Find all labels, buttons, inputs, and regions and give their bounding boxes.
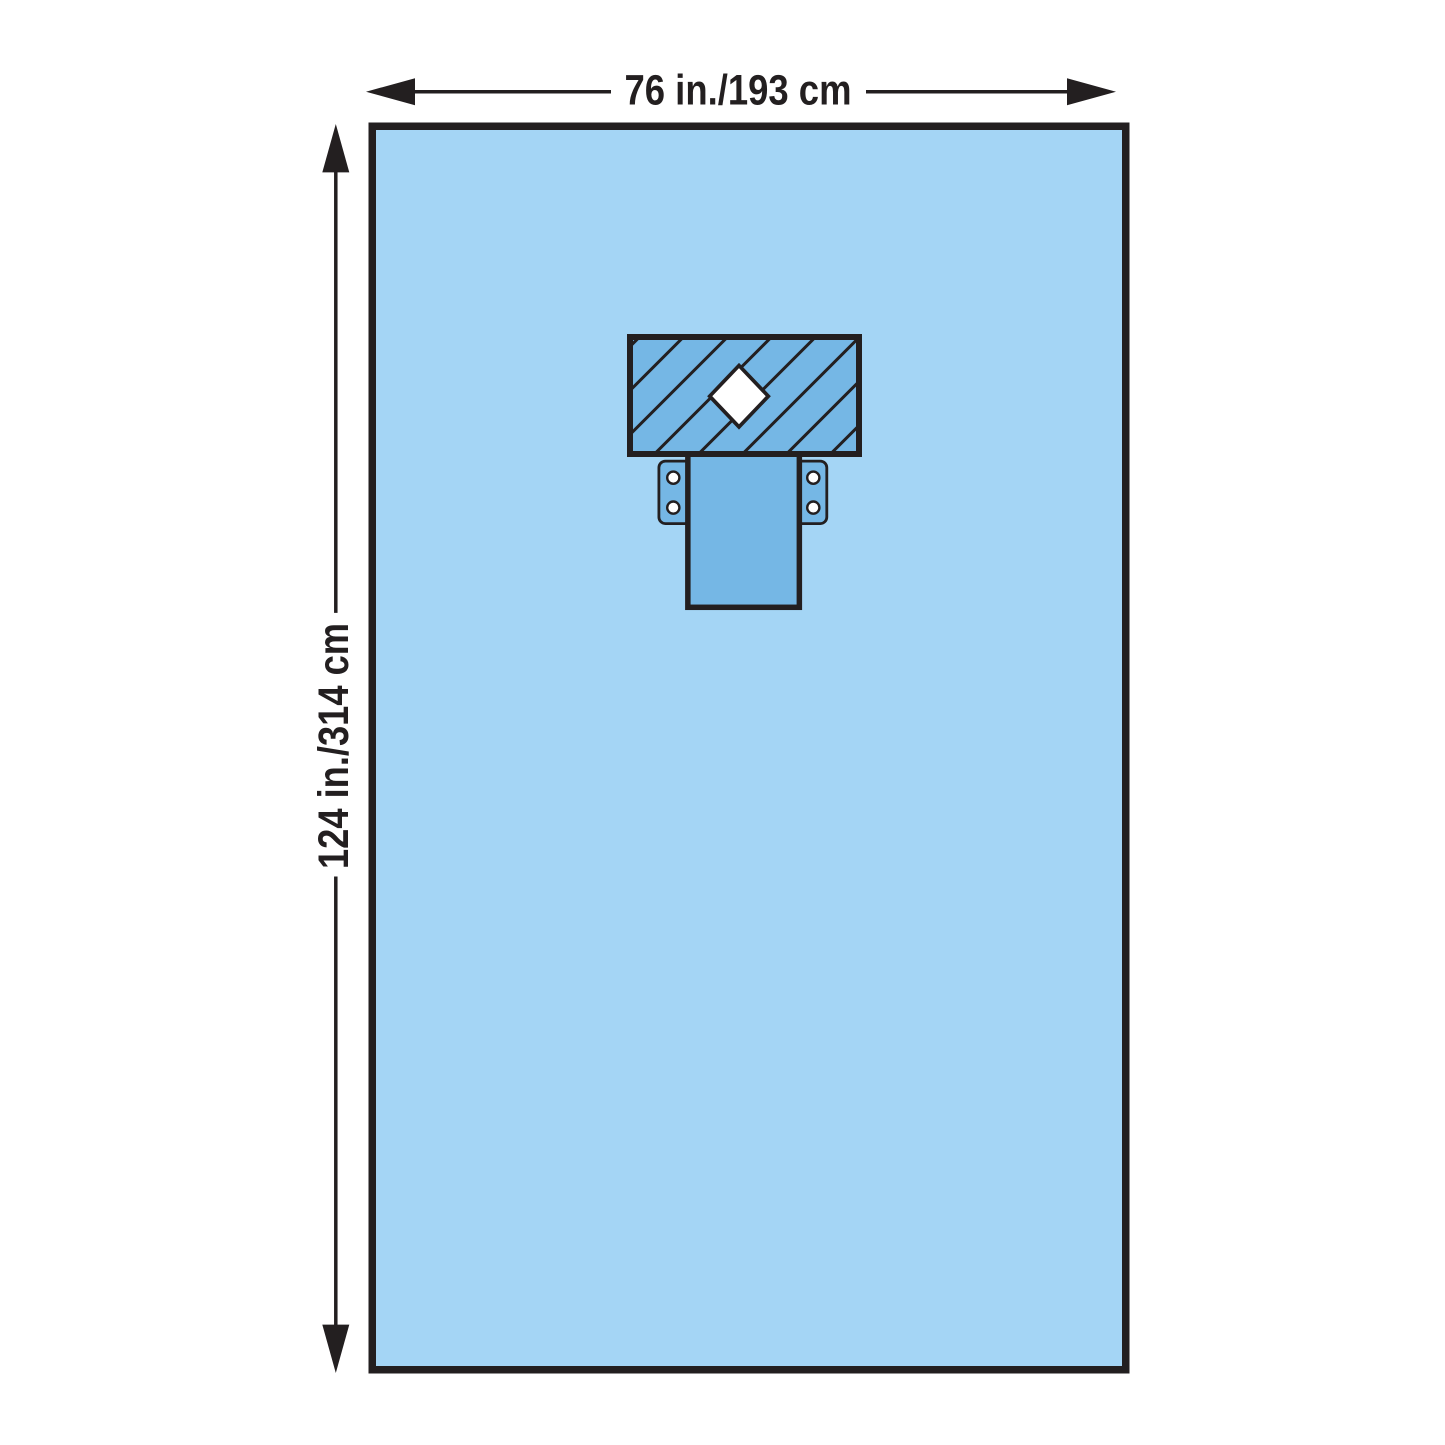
svg-text:124 in./314 cm: 124 in./314 cm (311, 623, 358, 869)
svg-text:76 in./193 cm: 76 in./193 cm (625, 68, 852, 115)
